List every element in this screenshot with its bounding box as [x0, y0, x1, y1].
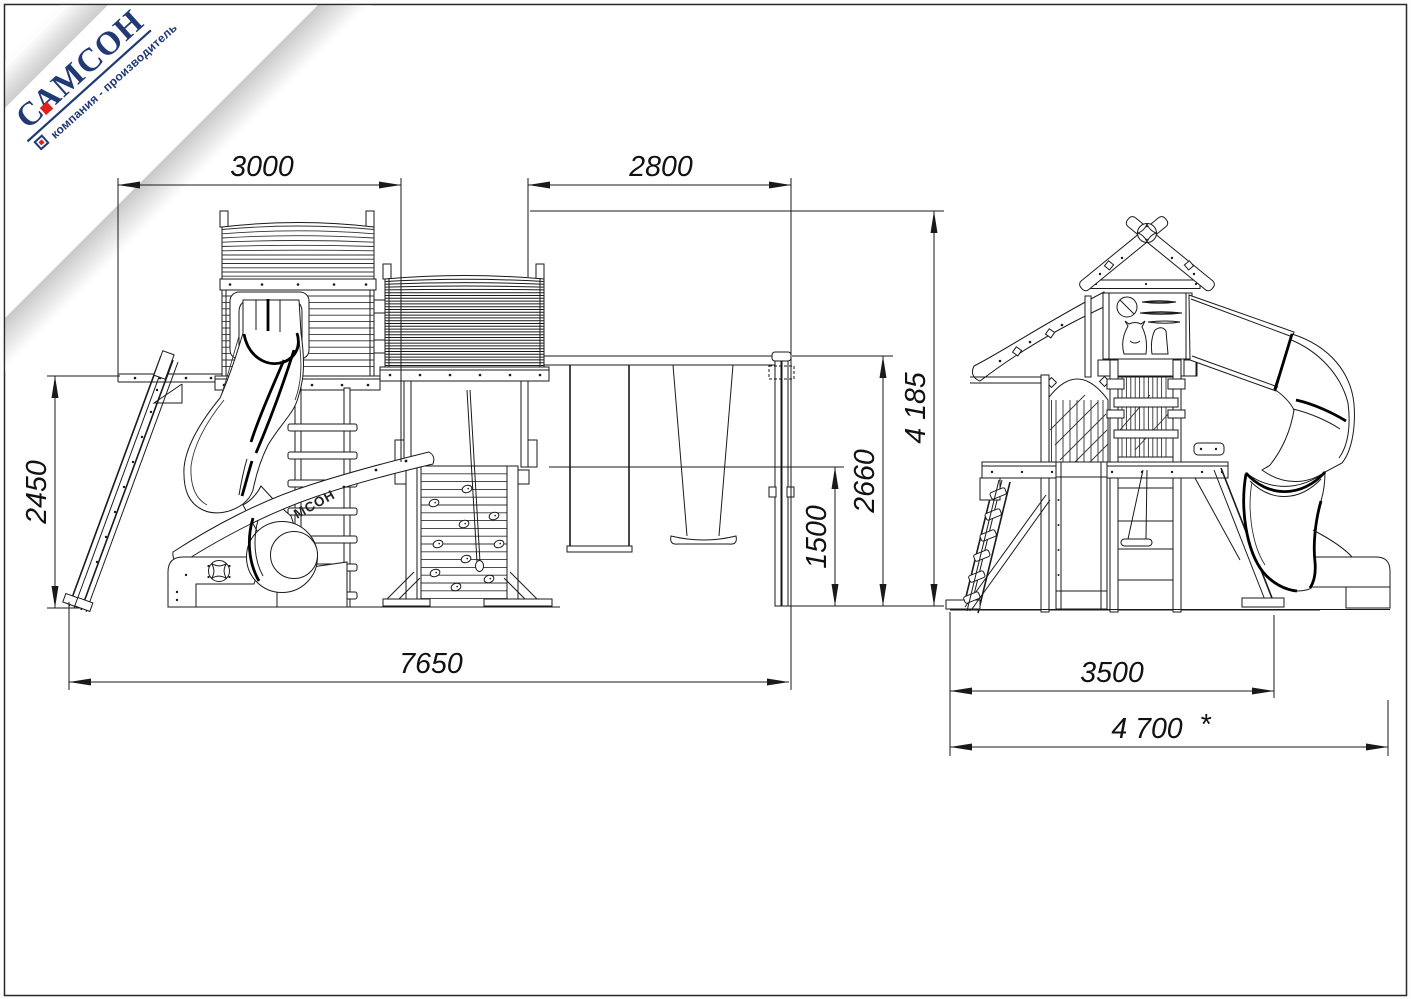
svg-text:7650: 7650 [399, 648, 463, 680]
svg-text:2660: 2660 [849, 449, 881, 514]
svg-text:3500: 3500 [1080, 657, 1144, 689]
svg-text:4 185: 4 185 [900, 372, 932, 443]
svg-text:3000: 3000 [230, 151, 294, 183]
svg-text:2450: 2450 [21, 460, 53, 525]
svg-text:4 700: 4 700 [1111, 713, 1182, 745]
svg-text:2800: 2800 [628, 151, 693, 183]
svg-text:1500: 1500 [801, 505, 833, 569]
svg-text:*: * [1199, 709, 1211, 741]
